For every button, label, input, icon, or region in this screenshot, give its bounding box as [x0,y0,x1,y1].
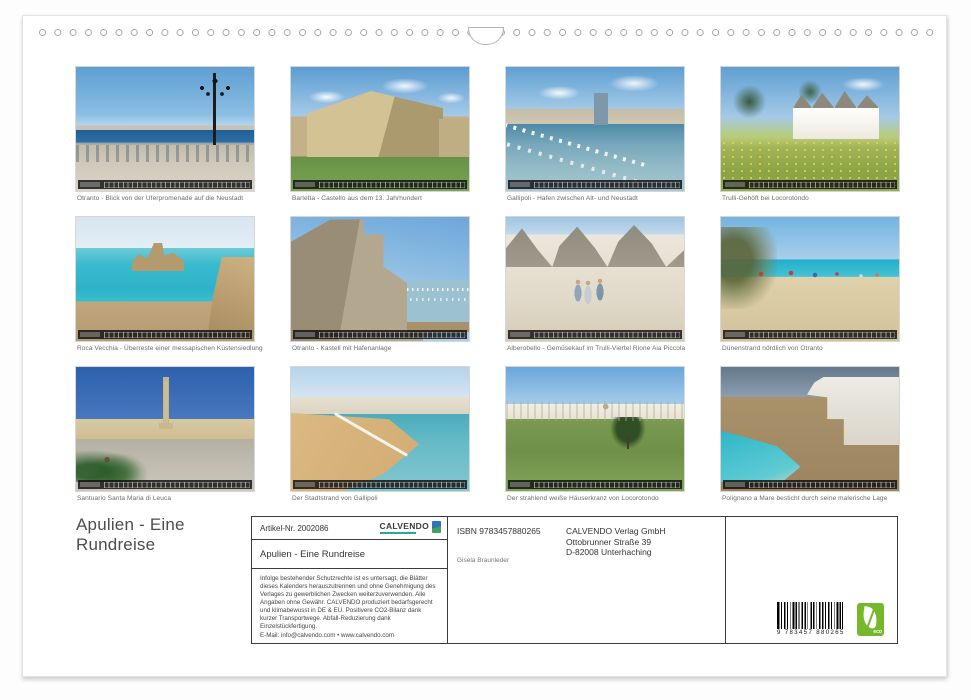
scene-detail [307,91,443,157]
scene-detail [291,217,423,341]
photo-tile: Santuario Santa Maria di Leuca [76,367,254,502]
info-box: Artikel-Nr. 2002086 CALVENDO Apulien - E… [251,516,898,644]
photo-tile: Otranto - Kastell mit Hafenanlage [291,217,469,352]
photo-caption: Roca Vecchia - Überreste einer messapisc… [77,345,254,352]
photo-thumbnail [76,67,254,191]
photo-tile: Gallipoli - Hafen zwischen Alt- und Neus… [506,67,684,202]
scene-detail [506,401,684,421]
calvendo-tagline-bar [380,532,416,534]
barcode-number: 9 783457 880265 [777,630,843,636]
scene-detail [594,93,608,125]
photo-caption: Trulli-Gehöft bei Locorotondo [722,195,899,202]
photo-caption: Otranto - Blick von der Uferpromenade au… [77,195,254,202]
leaf-icon [862,606,879,629]
info-box-column-barcode: 9 783457 880265 eco [726,517,897,643]
photo-tile: Otranto - Blick von der Uferpromenade au… [76,67,254,202]
mini-calendar-strip [508,180,682,189]
scene-detail [132,243,184,271]
mini-calendar-strip [508,480,682,489]
mini-calendar-strip [293,480,467,489]
calvendo-logo: CALVENDO [380,521,441,534]
photo-tile: Barletta - Castello aus dem 13. Jahrhund… [291,67,469,202]
photo-thumbnail [721,367,899,491]
eco-icon: eco [857,603,884,636]
photo-caption: Santuario Santa Maria di Leuca [77,495,254,502]
page-title-line1: Apulien - Eine [76,515,185,535]
page-title-line2: Rundreise [76,535,185,555]
mini-calendar-strip [78,480,252,489]
scene-detail [208,257,254,332]
mini-calendar-strip [293,180,467,189]
photo-thumbnail [506,67,684,191]
mini-calendar-strip [78,180,252,189]
photo-thumbnail [721,217,899,341]
photo-thumbnail [506,367,684,491]
publisher-address: CALVENDO Verlag GmbH Ottobrunner Straße … [566,526,666,558]
scene-detail [164,381,168,427]
photo-tile: Polignano a Mare besticht durch seine ma… [721,367,899,502]
scene-detail [194,73,236,145]
scene-detail [570,273,614,311]
mini-calendar-strip [723,480,897,489]
photo-caption: Gallipoli - Hafen zwischen Alt- und Neus… [507,195,684,202]
legal-row: Infolge bestehender Schutzrechte ist es … [252,569,447,647]
author-name: Gisela Braunleder [457,557,509,564]
eco-label: eco [873,629,882,635]
info-box-column-product: Artikel-Nr. 2002086 CALVENDO Apulien - E… [252,517,448,643]
photo-thumbnail [76,217,254,341]
mini-calendar-strip [723,180,897,189]
photo-thumbnail [291,67,469,191]
hanger-notch [468,27,504,45]
photo-caption: Alberobello - Gemüsekauf im Trulli-Viert… [507,345,684,352]
calvendo-logo-text: CALVENDO [380,521,429,531]
mini-calendar-strip [723,330,897,339]
photo-tile: Trulli-Gehöft bei Locorotondo [721,67,899,202]
publisher-line: CALVENDO Verlag GmbH [566,526,666,537]
scene-detail [407,280,469,332]
photo-tile: Roca Vecchia - Überreste einer messapisc… [76,217,254,352]
photo-caption: Der Stadtstrand von Gallipoli [292,495,469,502]
photo-thumbnail [721,67,899,191]
scene-detail [506,225,684,267]
photo-tile: Der Stadtstrand von Gallipoli [291,367,469,502]
calvendo-flag-icon [432,521,441,533]
scene-detail [721,431,823,482]
scene-detail [610,417,646,449]
scene-detail [807,377,899,445]
page-title: Apulien - Eine Rundreise [76,515,185,555]
scene-detail [76,145,254,162]
scene-detail [76,446,150,482]
isbn: ISBN 9783457880265 [457,526,541,536]
photo-thumbnail [506,217,684,341]
product-title: Apulien - Eine Rundreise [260,549,365,560]
publisher-line: Ottobrunner Straße 39 [566,537,666,548]
photo-caption: Polignano a Mare besticht durch seine ma… [722,495,899,502]
info-box-column-publisher: ISBN 9783457880265 CALVENDO Verlag GmbH … [448,517,726,643]
scene-detail [439,119,469,157]
article-number-row: Artikel-Nr. 2002086 CALVENDO [252,517,447,540]
mini-calendar-strip [508,330,682,339]
legal-text: Infolge bestehender Schutzrechte ist es … [260,575,439,631]
barcode-bars [777,602,843,629]
photo-thumbnail [291,367,469,491]
product-title-row: Apulien - Eine Rundreise [252,540,447,569]
photo-caption: Otranto - Kastell mit Hafenanlage [292,345,469,352]
photo-tile: Alberobello - Gemüsekauf im Trulli-Viert… [506,217,684,352]
mini-calendar-strip [293,330,467,339]
mini-calendar-strip [78,330,252,339]
photo-caption: Dünenstrand nördlich von Otranto [722,345,899,352]
article-number: Artikel-Nr. 2002086 [260,524,328,533]
contact-line: E-Mail: info@calvendo.com • www.calvendo… [260,632,439,640]
publisher-line: D-82008 Unterhaching [566,547,666,558]
ean-barcode: 9 783457 880265 [777,602,843,636]
photo-caption: Barletta - Castello aus dem 13. Jahrhund… [292,195,469,202]
scene-detail [793,107,879,139]
photo-caption: Der strahlend weiße Häuserkranz von Loco… [507,495,684,502]
photo-thumbnail [291,217,469,341]
photo-tile: Dünenstrand nördlich von Otranto [721,217,899,352]
photo-tile: Der strahlend weiße Häuserkranz von Loco… [506,367,684,502]
calendar-back-page: Otranto - Blick von der Uferpromenade au… [22,15,947,677]
scene-detail [751,269,893,285]
scene-detail [721,227,777,309]
photo-thumbnail [76,367,254,491]
